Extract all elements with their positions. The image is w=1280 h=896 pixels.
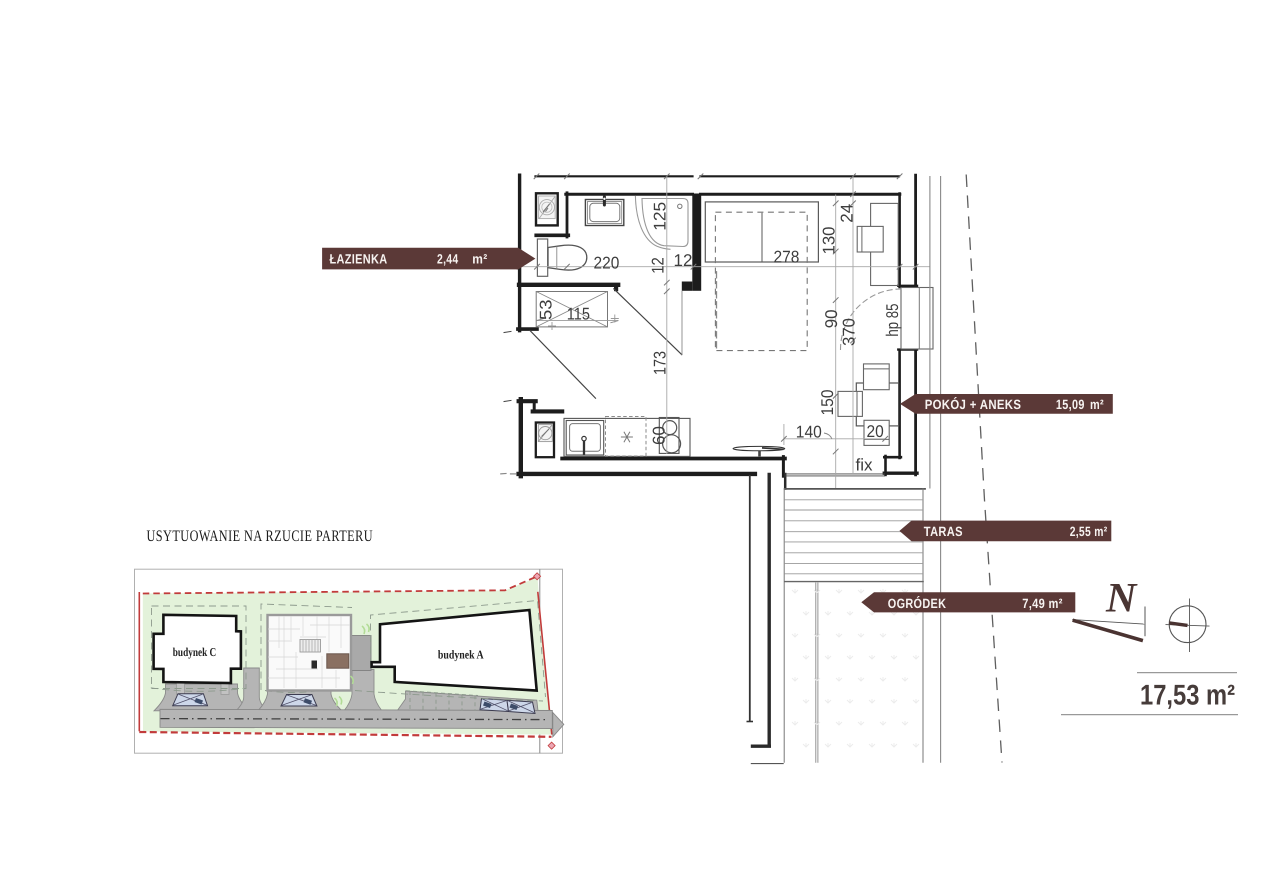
svg-text:hp 85: hp 85	[883, 304, 902, 337]
svg-text:budynek C: budynek C	[173, 645, 216, 659]
svg-text:220: 220	[594, 254, 620, 273]
svg-text:fix: fix	[856, 456, 874, 475]
svg-text:24: 24	[838, 204, 857, 223]
svg-text:115: 115	[567, 305, 590, 324]
svg-text:OGRÓDEK: OGRÓDEK	[888, 596, 947, 611]
svg-text:2,55 m²: 2,55 m²	[1070, 524, 1108, 539]
svg-text:budynek A: budynek A	[438, 647, 484, 661]
svg-text:125: 125	[651, 202, 670, 231]
svg-text:USYTUOWANIE NA RZUCIE PARTERU: USYTUOWANIE NA RZUCIE PARTERU	[147, 528, 374, 545]
svg-text:2,44: 2,44	[437, 252, 459, 267]
svg-text:53: 53	[537, 300, 556, 321]
svg-text:m²: m²	[472, 252, 487, 267]
svg-text:TARAS: TARAS	[924, 524, 963, 539]
svg-text:20: 20	[867, 422, 884, 441]
svg-text:173: 173	[651, 351, 670, 375]
svg-text:POKÓJ + ANEKS: POKÓJ + ANEKS	[925, 397, 1022, 412]
svg-text:90: 90	[822, 309, 841, 328]
svg-text:150: 150	[818, 390, 837, 416]
svg-text:370: 370	[840, 318, 859, 346]
svg-text:N: N	[1105, 576, 1138, 622]
svg-text:m²: m²	[1090, 397, 1104, 412]
svg-text:17,53 m²: 17,53 m²	[1140, 680, 1235, 712]
svg-text:12: 12	[649, 257, 668, 274]
svg-text:60: 60	[650, 426, 669, 445]
svg-text:12: 12	[674, 251, 693, 270]
svg-text:130: 130	[820, 227, 839, 255]
svg-text:278: 278	[774, 247, 800, 266]
svg-text:7,49 m²: 7,49 m²	[1022, 596, 1063, 611]
svg-text:15,09: 15,09	[1056, 397, 1085, 412]
svg-text:ŁAZIENKA: ŁAZIENKA	[330, 252, 388, 267]
svg-text:140: 140	[796, 423, 822, 442]
